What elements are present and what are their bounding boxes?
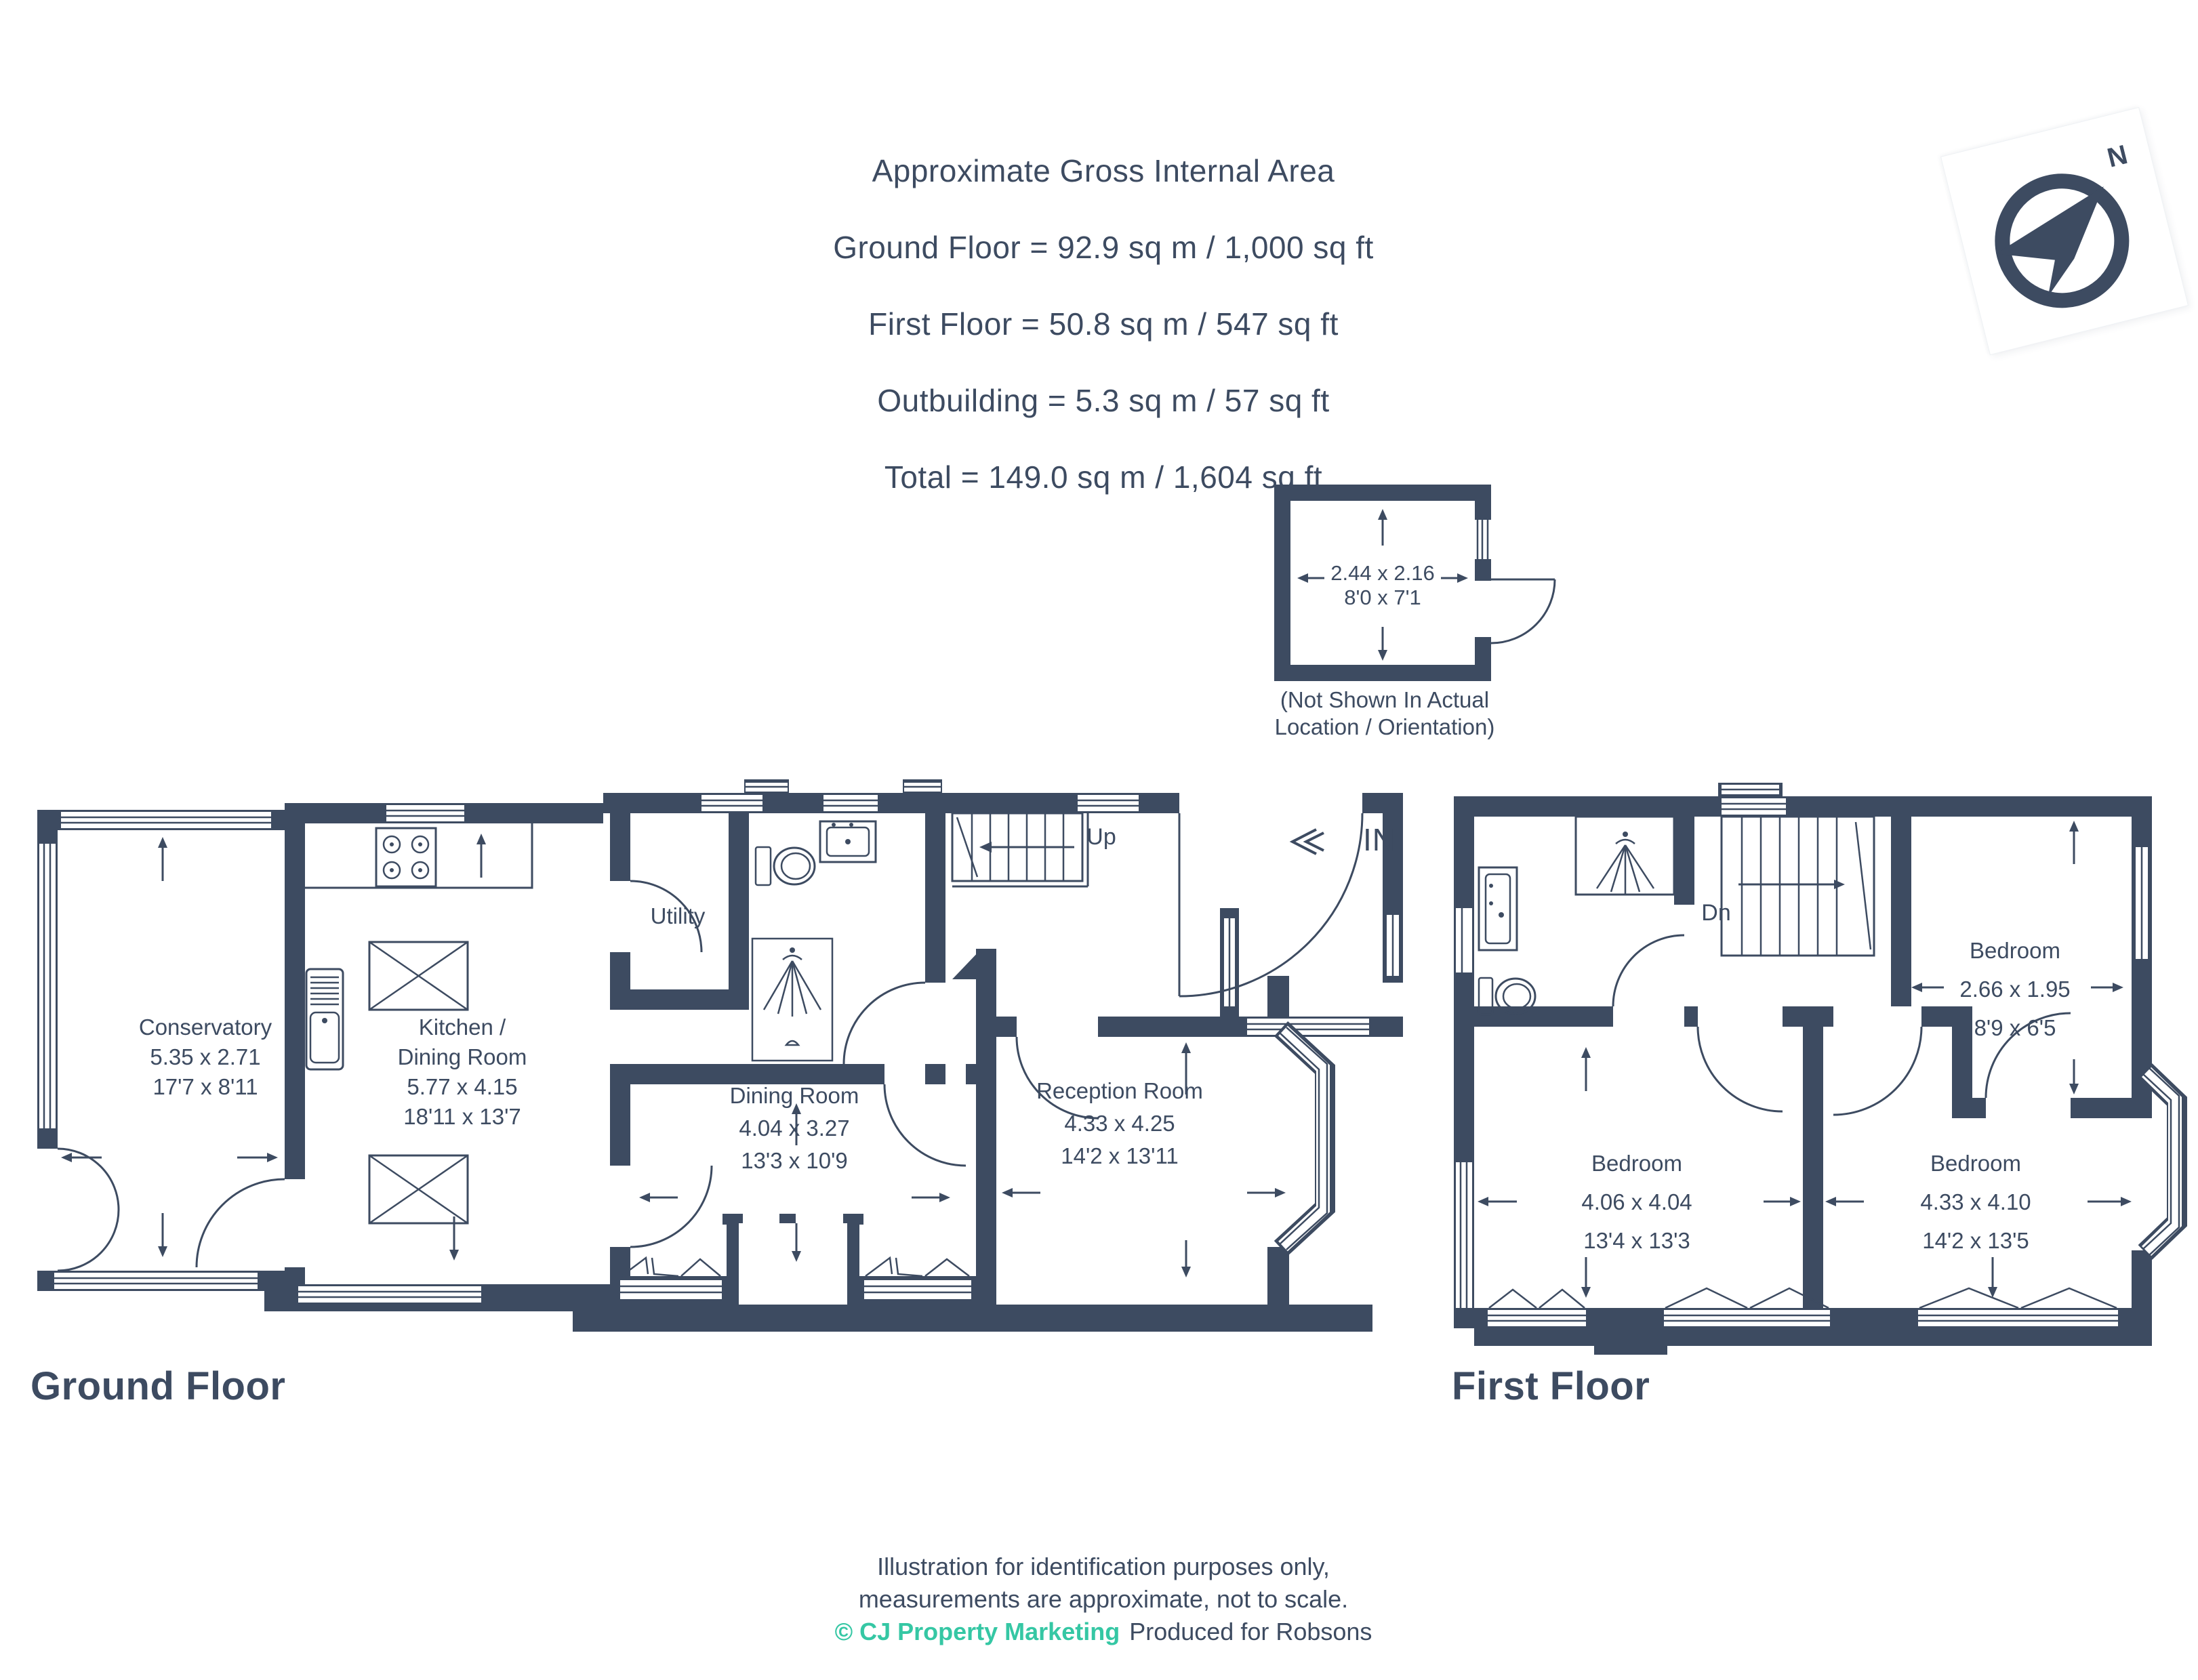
bedroom-left-dims-imperial: 13'4 x 13'3	[1581, 1221, 1692, 1260]
kitchen-name-line1: Kitchen /	[398, 1012, 527, 1042]
basin-icon	[1479, 867, 1517, 950]
stairs-up-label: Up	[1086, 824, 1116, 851]
first-floor-title: First Floor	[1452, 1364, 1650, 1409]
bedroom-small-dims-metric: 2.66 x 1.95	[1959, 970, 2070, 1008]
bedroom-small-name: Bedroom	[1959, 931, 2070, 970]
outbuilding-note: (Not Shown In Actual Location / Orientat…	[1275, 687, 1495, 741]
kitchen-name-line2: Dining Room	[398, 1042, 527, 1072]
kitchen-dims-metric: 5.77 x 4.15	[398, 1072, 527, 1102]
footer-copyright: © CJ Property Marketing	[835, 1618, 1120, 1645]
outbuilding-dims-imperial: 8'0 x 7'1	[1330, 586, 1434, 610]
shower-icon	[1597, 832, 1654, 894]
dining-name: Dining Room	[730, 1080, 859, 1112]
compass: N	[1940, 107, 2189, 355]
ff-bathroom-fixtures	[1479, 817, 1674, 1015]
toilet-icon	[756, 847, 815, 885]
room-label-bedroom-small: Bedroom 2.66 x 1.95 8'9 x 6'5	[1959, 931, 2070, 1047]
dining-dims-imperial: 13'3 x 10'9	[730, 1145, 859, 1177]
entrance-in-label: IN	[1363, 821, 1396, 858]
conservatory-dims-metric: 5.35 x 2.71	[139, 1042, 272, 1072]
header-line-ground: Ground Floor = 92.9 sq m / 1,000 sq ft	[833, 209, 1374, 286]
outbuilding-door	[1491, 579, 1555, 643]
reception-dims-metric: 4.33 x 4.25	[1036, 1107, 1203, 1140]
first-floor-plan	[1450, 783, 2196, 1355]
sink-icon	[306, 969, 343, 1069]
room-label-kitchen: Kitchen / Dining Room 5.77 x 4.15 18'11 …	[398, 1012, 527, 1132]
gf-stairs	[952, 813, 1088, 886]
dining-dims-metric: 4.04 x 3.27	[730, 1112, 859, 1145]
footer-produced-for: Produced for Robsons	[1129, 1618, 1372, 1645]
ff-windows	[1456, 785, 2148, 1326]
gf-bay-window	[1280, 1027, 1327, 1250]
footer-line2: measurements are approximate, not to sca…	[835, 1583, 1372, 1616]
ground-floor-title: Ground Floor	[30, 1364, 286, 1409]
header-line-outbuild: Outbuilding = 5.3 sq m / 57 sq ft	[833, 363, 1374, 439]
floorplan-page: Approximate Gross Internal Area Ground F…	[0, 0, 2198, 1680]
header-line-first: First Floor = 50.8 sq m / 547 sq ft	[833, 286, 1374, 363]
reception-dims-imperial: 14'2 x 13'11	[1036, 1140, 1203, 1172]
room-label-reception: Reception Room 4.33 x 4.25 14'2 x 13'11	[1036, 1075, 1203, 1172]
outbuilding-note-line2: Location / Orientation)	[1275, 714, 1495, 741]
compass-icon	[1941, 108, 2188, 354]
footer-credit: © CJ Property MarketingProduced for Robs…	[835, 1616, 1372, 1648]
footer-line1: Illustration for identification purposes…	[835, 1551, 1372, 1583]
kitchen-dims-imperial: 18'11 x 13'7	[398, 1102, 527, 1132]
outbuilding-window	[1478, 520, 1488, 559]
basin-icon	[820, 821, 876, 862]
header-area-summary: Approximate Gross Internal Area Ground F…	[833, 133, 1374, 516]
gf-wc-fixtures	[752, 821, 876, 1061]
outbuilding-note-line1: (Not Shown In Actual	[1275, 687, 1495, 714]
hob-icon	[376, 828, 436, 886]
room-label-bedroom-right: Bedroom 4.33 x 4.10 14'2 x 13'5	[1920, 1144, 2031, 1260]
ff-stairs	[1722, 817, 1874, 956]
stairs-dn-label: Dn	[1701, 900, 1730, 926]
room-label-dining: Dining Room 4.04 x 3.27 13'3 x 10'9	[730, 1080, 859, 1177]
bedroom-left-dims-metric: 4.06 x 4.04	[1581, 1183, 1692, 1221]
outbuilding-dims: 2.44 x 2.16 8'0 x 7'1	[1330, 561, 1434, 610]
footer-disclaimer: Illustration for identification purposes…	[835, 1551, 1372, 1648]
reception-name: Reception Room	[1036, 1075, 1203, 1107]
bedroom-right-dims-imperial: 14'2 x 13'5	[1920, 1221, 2031, 1260]
header-line-title: Approximate Gross Internal Area	[833, 133, 1374, 209]
shower-icon	[752, 939, 832, 1061]
room-label-bedroom-left: Bedroom 4.06 x 4.04 13'4 x 13'3	[1581, 1144, 1692, 1260]
room-label-utility: Utility	[651, 900, 706, 933]
bedroom-right-name: Bedroom	[1920, 1144, 2031, 1183]
ff-walls	[1454, 783, 2152, 1355]
conservatory-dims-imperial: 17'7 x 8'11	[139, 1072, 272, 1102]
conservatory-name: Conservatory	[139, 1012, 272, 1042]
bedroom-small-dims-imperial: 8'9 x 6'5	[1959, 1008, 2070, 1047]
outbuilding-dims-metric: 2.44 x 2.16	[1330, 561, 1434, 586]
bedroom-right-dims-metric: 4.33 x 4.10	[1920, 1183, 2031, 1221]
room-label-conservatory: Conservatory 5.35 x 2.71 17'7 x 8'11	[139, 1012, 272, 1102]
bedroom-left-name: Bedroom	[1581, 1144, 1692, 1183]
